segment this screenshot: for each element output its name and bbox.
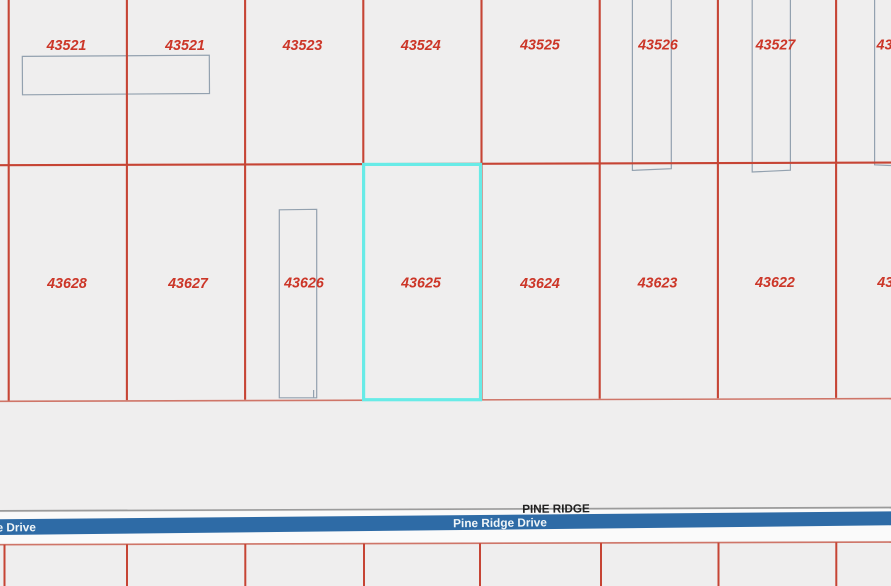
svg-text:PINE RIDGE: PINE RIDGE	[522, 502, 590, 516]
svg-text:43622: 43622	[754, 275, 795, 291]
svg-text:43523: 43523	[282, 38, 323, 54]
svg-text:436: 436	[876, 275, 891, 291]
svg-text:43524: 43524	[400, 38, 441, 54]
svg-text:43521: 43521	[164, 38, 205, 54]
svg-text:43525: 43525	[519, 37, 561, 53]
svg-text:43521: 43521	[46, 38, 87, 54]
svg-text:Pine Ridge Drive: Pine Ridge Drive	[0, 520, 36, 535]
svg-text:43526: 43526	[637, 37, 679, 53]
svg-text:43624: 43624	[519, 276, 560, 292]
svg-text:43627: 43627	[167, 276, 209, 292]
svg-text:Pine Ridge Drive: Pine Ridge Drive	[453, 515, 547, 530]
svg-text:43628: 43628	[46, 276, 87, 292]
svg-text:435: 435	[876, 37, 891, 53]
svg-text:43527: 43527	[755, 37, 797, 53]
svg-text:43625: 43625	[400, 276, 442, 292]
svg-text:43623: 43623	[637, 276, 678, 292]
svg-text:43626: 43626	[283, 276, 325, 292]
